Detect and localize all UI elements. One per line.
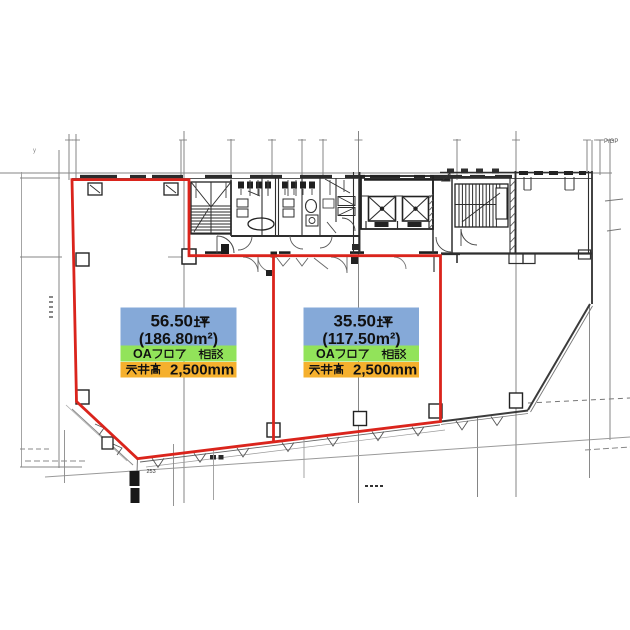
svg-text:P/GP: P/GP bbox=[604, 139, 618, 145]
svg-text:(186.80m²): (186.80m²) bbox=[139, 331, 218, 348]
svg-text:2,500mm: 2,500mm bbox=[170, 362, 234, 379]
svg-text:2,500mm: 2,500mm bbox=[353, 362, 417, 379]
svg-text:(117.50m²): (117.50m²) bbox=[322, 331, 400, 348]
svg-text:OA: OA bbox=[316, 347, 335, 361]
svg-text:56.50: 56.50 bbox=[150, 312, 193, 331]
svg-text:35.50: 35.50 bbox=[333, 312, 376, 331]
svg-text:y: y bbox=[33, 148, 36, 154]
svg-text:253: 253 bbox=[147, 469, 156, 475]
svg-text:OA: OA bbox=[133, 347, 152, 361]
